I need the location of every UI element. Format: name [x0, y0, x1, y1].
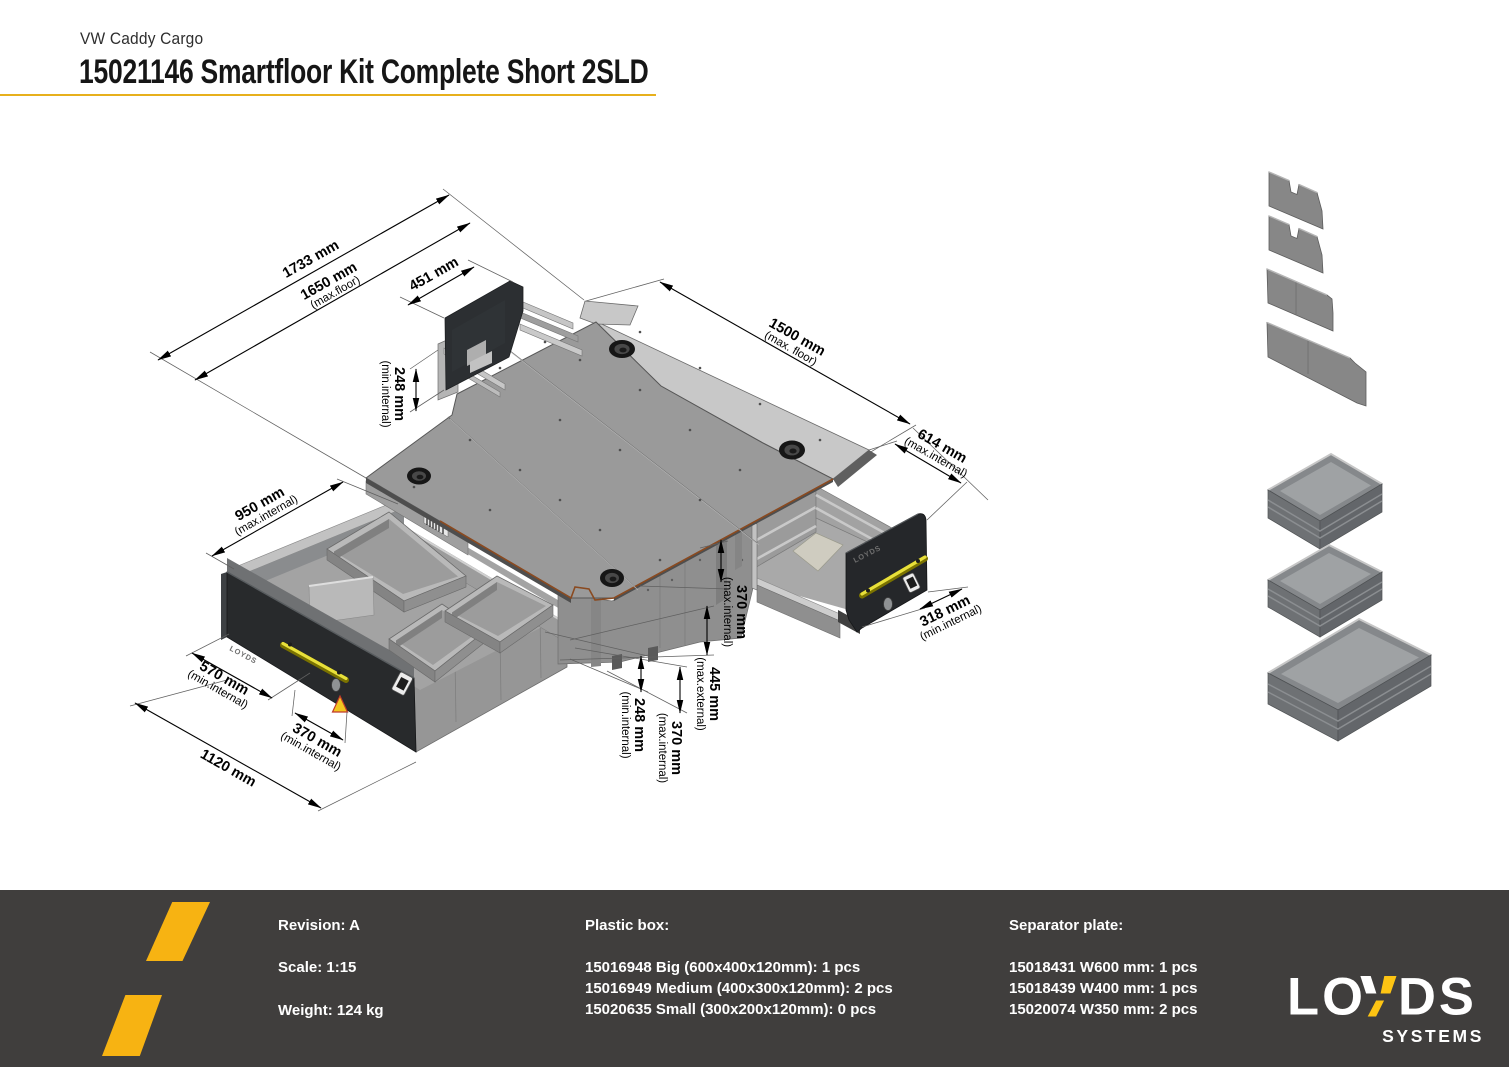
- svg-text:248 mm: 248 mm: [391, 367, 407, 421]
- svg-text:1120 mm: 1120 mm: [197, 746, 258, 790]
- svg-text:451 mm: 451 mm: [407, 254, 462, 295]
- svg-text:(max.internal): (max.internal): [721, 577, 733, 647]
- svg-text:370 mm: 370 mm: [733, 585, 749, 639]
- svg-text:370 mm: 370 mm: [668, 721, 684, 775]
- svg-text:(min.internal): (min.internal): [619, 691, 631, 758]
- svg-text:(max.external): (max.external): [694, 657, 706, 731]
- svg-text:(max.internal): (max.internal): [656, 713, 668, 783]
- svg-text:248 mm: 248 mm: [631, 698, 647, 752]
- svg-text:(min.internal): (min.internal): [379, 360, 391, 427]
- svg-text:445 mm: 445 mm: [706, 667, 722, 721]
